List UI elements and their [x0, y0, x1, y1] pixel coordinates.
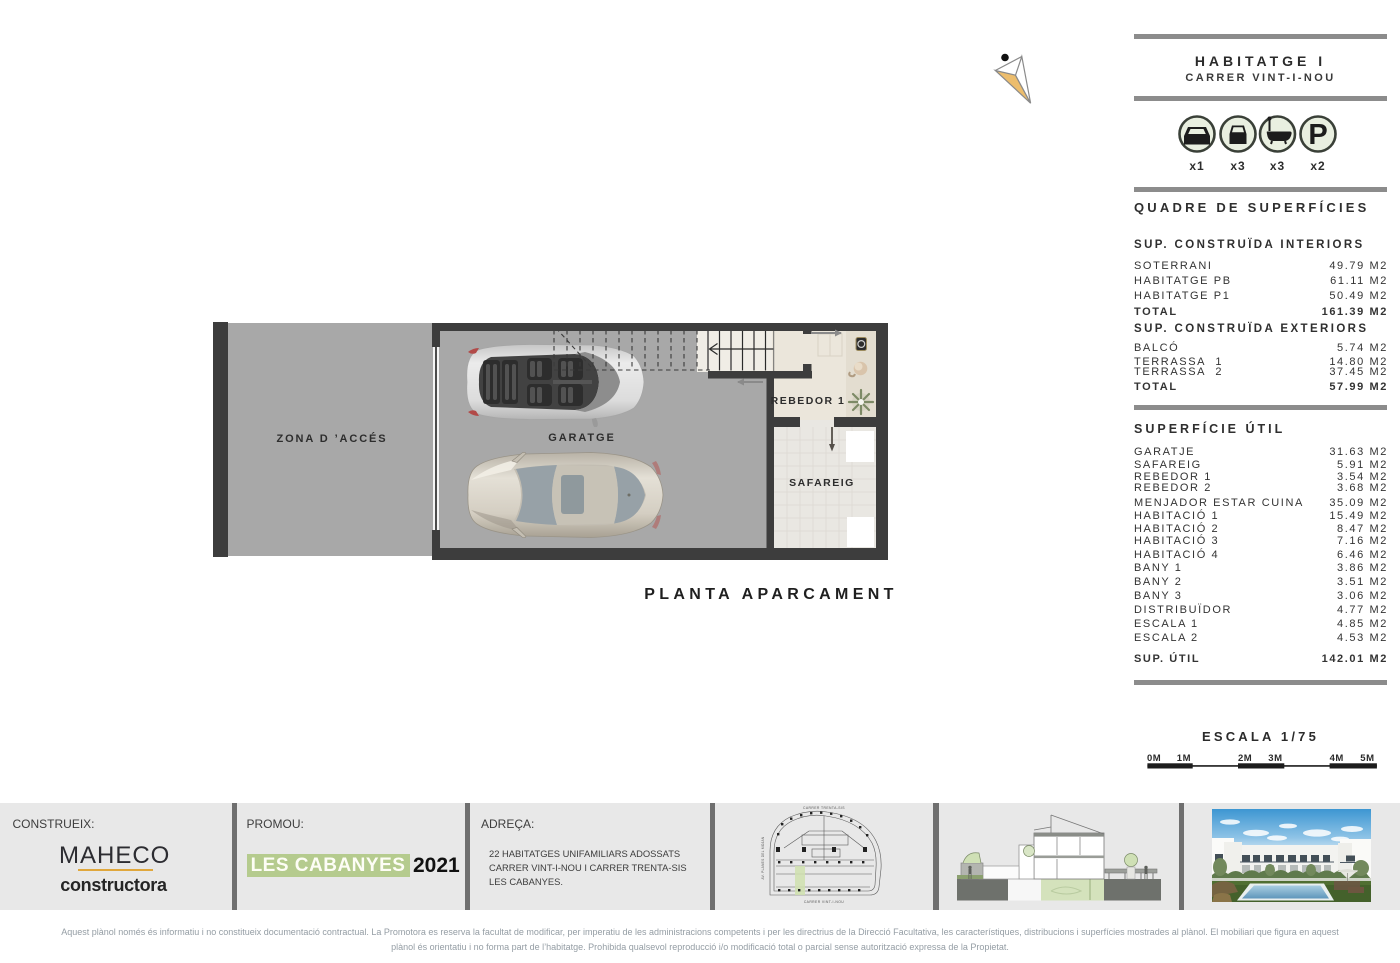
- svg-text:REBEDOR 1: REBEDOR 1: [771, 395, 846, 407]
- svg-text:AV. PLANES DEL MOJAN: AV. PLANES DEL MOJAN: [761, 836, 765, 879]
- svg-text:P: P: [1308, 119, 1327, 151]
- svg-text:4M: 4M: [1330, 753, 1344, 764]
- svg-text:5M: 5M: [1360, 753, 1374, 764]
- svg-text:3M: 3M: [1268, 753, 1282, 764]
- svg-text:PLANTA APARCAMENT: PLANTA APARCAMENT: [644, 586, 898, 603]
- svg-text:2M: 2M: [1238, 753, 1252, 764]
- svg-text:x2: x2: [1310, 159, 1325, 173]
- svg-text:1M: 1M: [1177, 753, 1191, 764]
- svg-text:0M: 0M: [1147, 753, 1161, 764]
- svg-text:ZONA D ’ACCÉS: ZONA D ’ACCÉS: [276, 432, 387, 445]
- svg-text:CARRER VINT-I-NOU: CARRER VINT-I-NOU: [804, 900, 844, 904]
- svg-text:SAFAREIG: SAFAREIG: [789, 477, 855, 489]
- svg-text:CARRER TRENTA-SIS: CARRER TRENTA-SIS: [803, 806, 845, 810]
- svg-text:x3: x3: [1270, 159, 1285, 173]
- svg-text:GARATGE: GARATGE: [548, 432, 615, 444]
- svg-text:x3: x3: [1230, 159, 1245, 173]
- svg-text:x1: x1: [1189, 159, 1204, 173]
